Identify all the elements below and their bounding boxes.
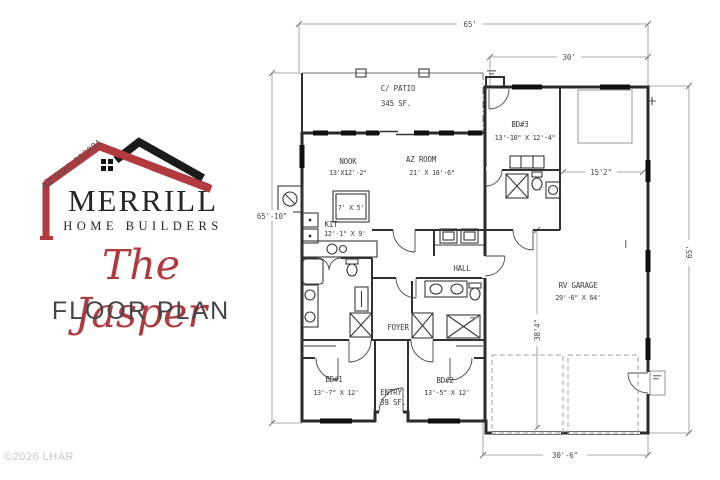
room-label-kitchen: KIT <box>325 220 339 229</box>
room-area-patio: 345 SF. <box>381 99 411 108</box>
parking-bay <box>568 355 638 433</box>
room-dims-nook: 13'X12'-2" <box>329 169 367 177</box>
windows <box>302 87 648 421</box>
room-dims-bd3: 13'-10" X 12'-4" <box>495 134 556 142</box>
dresser-symbol <box>510 156 544 168</box>
exterior-walls <box>302 77 648 433</box>
dim-garage-interior-width: 15'2" <box>590 168 612 177</box>
page: C/ PATIO 345 SF. NOOK 13'X12'-2" AZ ROOM… <box>0 0 720 480</box>
garage-inset <box>578 90 632 143</box>
parking-bay <box>492 355 563 433</box>
room-label-nook: NOOK <box>339 157 357 166</box>
room-label-foyer: FOYER <box>387 323 409 332</box>
toilet-symbol <box>469 283 481 288</box>
room-dims-az-room: 21' X 18'-6" <box>409 169 455 177</box>
room-dims-kitchen: 12'-1" X 9' <box>324 230 366 238</box>
suite-shower-x <box>506 174 528 198</box>
laundry-fixtures <box>440 229 478 243</box>
vanity-symbol <box>303 285 318 327</box>
kitchen-sink-symbol <box>327 244 337 254</box>
room-area-entry: 39 SF. <box>380 398 406 407</box>
room-label-rv-garage: RV GARAGE <box>559 281 599 290</box>
room-dims-bd2: 13'-5" X 12' <box>424 389 470 397</box>
gable-window-squares <box>101 159 113 171</box>
brand-block: AZ ROC 333831 MERRILL HOME BUILDERS The … <box>38 133 244 348</box>
room-label-bd3: BD#3 <box>511 120 528 129</box>
dim-top-width: 65' <box>464 20 477 29</box>
tub-symbol <box>303 259 323 284</box>
company-subtitle: HOME BUILDERS <box>48 219 238 234</box>
dim-left-height: 65'-10" <box>257 212 287 221</box>
plan-type-label: FLOOR PLAN <box>38 297 244 326</box>
island-dims: 7' X 5' <box>338 204 365 212</box>
company-name: MERRILL <box>48 183 238 219</box>
dim-garage-depth: 38'4" <box>533 319 542 341</box>
toilet-symbol <box>532 172 542 177</box>
room-dims-bd1: 13'-7" X 12' <box>313 389 359 397</box>
room-label-patio: C/ PATIO <box>381 84 416 93</box>
double-vanity-symbol <box>425 281 467 297</box>
room-label-az-room: AZ ROOM <box>406 155 437 164</box>
toilet-symbol <box>346 259 358 264</box>
room-label-entry: ENTRY <box>380 388 402 397</box>
room-label-hall: HALL <box>453 264 471 273</box>
dim-bottom-width: 30'-6" <box>552 451 578 460</box>
room-label-bd1: BD#1 <box>325 375 342 384</box>
room-label-bd2: BD#2 <box>436 376 453 385</box>
door-landing <box>650 371 665 395</box>
dim-garage-width: 30' <box>563 53 576 62</box>
dim-right-height: 65' <box>685 246 694 259</box>
copyright-text: ©2026 LHAR <box>4 451 74 463</box>
door-swings <box>316 89 648 412</box>
bath-fixtures <box>303 156 560 338</box>
shower-x <box>447 315 480 338</box>
room-dims-rv-garage: 29'-6" X 64' <box>555 294 601 302</box>
